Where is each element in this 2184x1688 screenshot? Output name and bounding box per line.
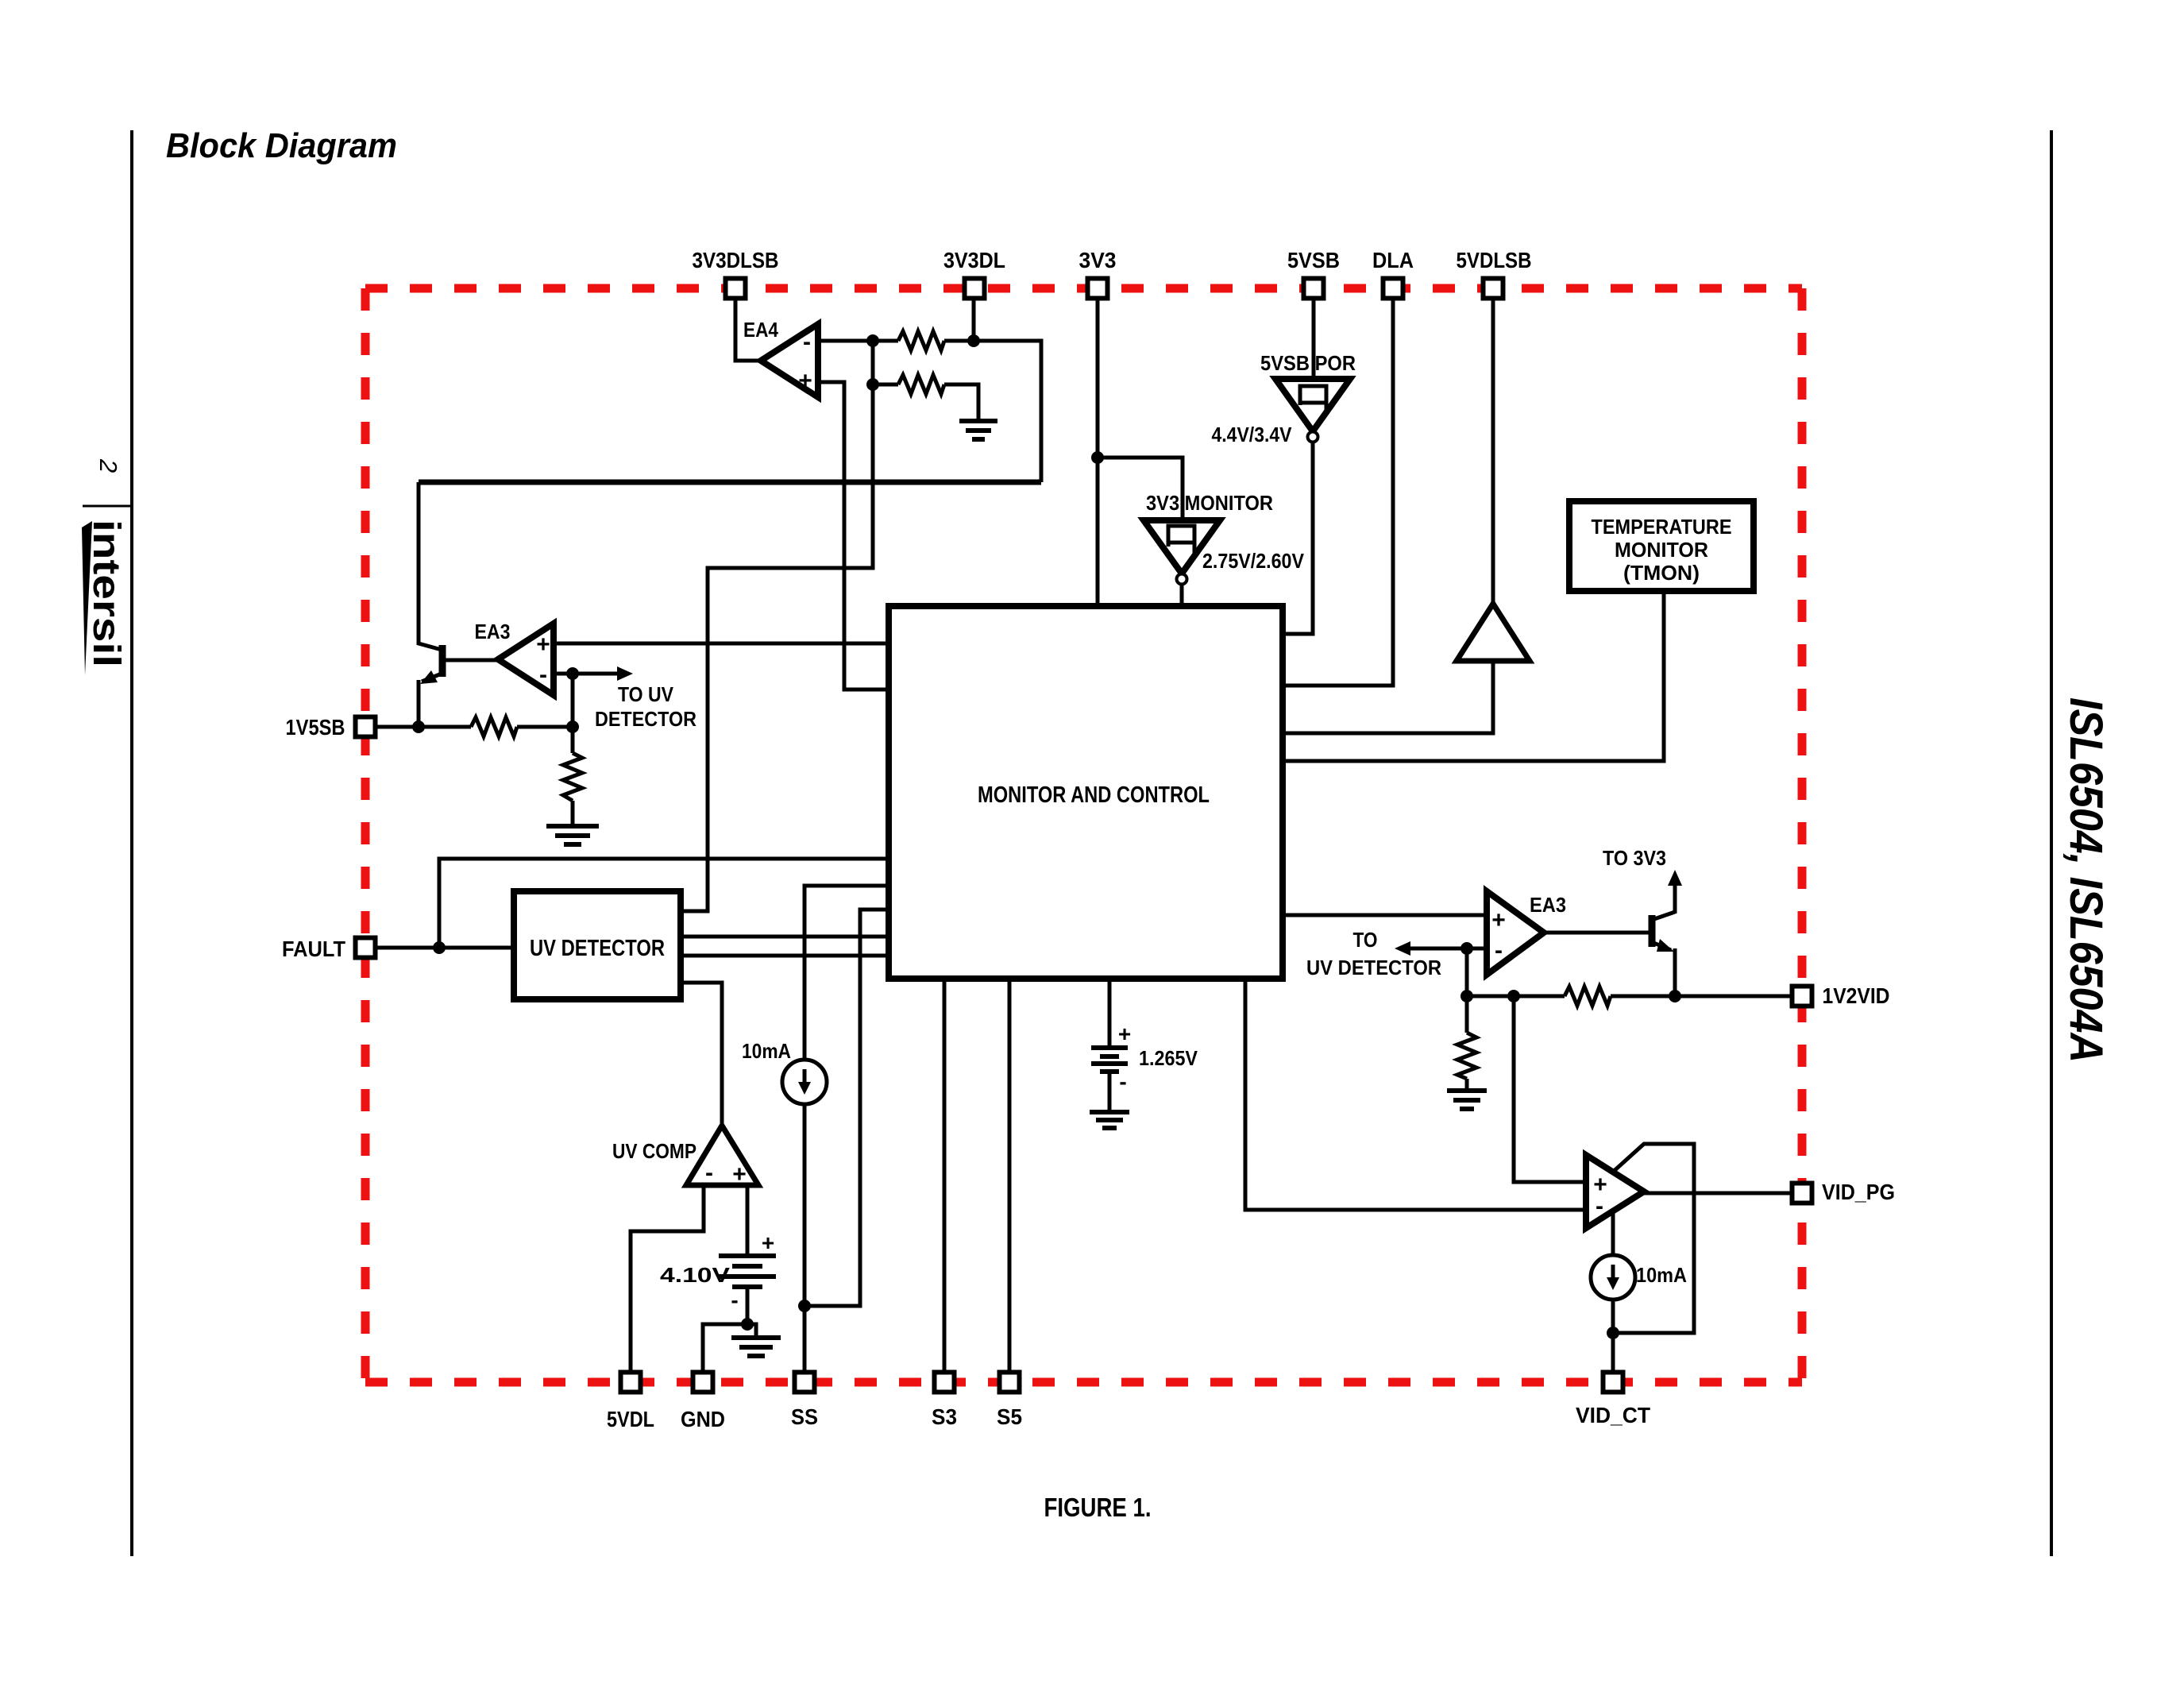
svg-text:DETECTOR: DETECTOR	[595, 707, 696, 731]
svg-text:5VSB: 5VSB	[1287, 248, 1340, 272]
svg-text:-: -	[1119, 1069, 1126, 1094]
svg-text:VID_CT: VID_CT	[1576, 1403, 1650, 1427]
svg-text:S5: S5	[997, 1404, 1022, 1429]
svg-text:+: +	[1491, 907, 1506, 933]
svg-text:DLA: DLA	[1372, 248, 1414, 272]
svg-text:2: 2	[95, 458, 122, 473]
svg-text:+: +	[798, 368, 812, 394]
svg-text:+: +	[762, 1230, 774, 1255]
svg-text:EA4: EA4	[743, 318, 778, 342]
svg-text:UV DETECTOR: UV DETECTOR	[530, 936, 665, 961]
svg-text:SS: SS	[791, 1404, 818, 1429]
svg-text:-: -	[1596, 1193, 1603, 1219]
svg-text:ISL6504, ISL6504A: ISL6504, ISL6504A	[2060, 697, 2112, 1063]
svg-text:+: +	[536, 632, 550, 658]
svg-text:MONITOR AND CONTROL: MONITOR AND CONTROL	[978, 782, 1210, 808]
svg-text:-: -	[705, 1160, 713, 1186]
svg-text:UV COMP: UV COMP	[612, 1139, 696, 1163]
svg-text:intersil: intersil	[85, 520, 127, 667]
svg-text:TO UV: TO UV	[618, 682, 674, 706]
svg-text:3V3DLSB: 3V3DLSB	[693, 248, 779, 272]
svg-text:FIGURE 1.: FIGURE 1.	[1044, 1493, 1152, 1522]
svg-text:1.265V: 1.265V	[1139, 1046, 1198, 1070]
svg-text:TEMPERATURE: TEMPERATURE	[1592, 515, 1732, 539]
svg-text:-: -	[803, 329, 811, 355]
svg-text:UV DETECTOR: UV DETECTOR	[1306, 956, 1441, 979]
svg-text:EA3: EA3	[475, 620, 511, 643]
svg-text:-: -	[539, 662, 547, 688]
svg-text:-: -	[731, 1288, 738, 1312]
svg-text:4.10V: 4.10V	[660, 1263, 731, 1287]
svg-text:(TMON): (TMON)	[1623, 561, 1700, 585]
svg-text:EA3: EA3	[1530, 893, 1566, 917]
svg-text:VID_PG: VID_PG	[1822, 1180, 1895, 1204]
svg-text:10mA: 10mA	[1636, 1263, 1687, 1287]
svg-text:-: -	[1495, 937, 1503, 964]
svg-text:MONITOR: MONITOR	[1615, 538, 1708, 562]
svg-text:3V3: 3V3	[1079, 248, 1117, 272]
svg-text:4.4V/3.4V: 4.4V/3.4V	[1212, 423, 1293, 446]
svg-text:Block Diagram: Block Diagram	[166, 126, 397, 165]
svg-text:2.75V/2.60V: 2.75V/2.60V	[1202, 549, 1305, 573]
svg-text:+: +	[732, 1161, 747, 1188]
svg-text:GND: GND	[681, 1407, 725, 1431]
svg-text:+: +	[1118, 1022, 1131, 1046]
svg-text:3V3DL: 3V3DL	[943, 248, 1005, 272]
svg-text:TO: TO	[1353, 928, 1378, 952]
svg-text:FAULT: FAULT	[282, 937, 345, 961]
svg-text:S3: S3	[932, 1404, 957, 1429]
svg-text:5VSB POR: 5VSB POR	[1260, 351, 1356, 375]
svg-text:1V2VID: 1V2VID	[1823, 983, 1890, 1008]
svg-text:3V3 MONITOR: 3V3 MONITOR	[1146, 491, 1273, 515]
svg-text:1V5SB: 1V5SB	[286, 715, 345, 740]
svg-text:10mA: 10mA	[742, 1039, 791, 1063]
svg-text:5VDL: 5VDL	[607, 1407, 654, 1431]
svg-text:5VDLSB: 5VDLSB	[1457, 248, 1532, 272]
svg-text:TO 3V3: TO 3V3	[1603, 846, 1666, 870]
